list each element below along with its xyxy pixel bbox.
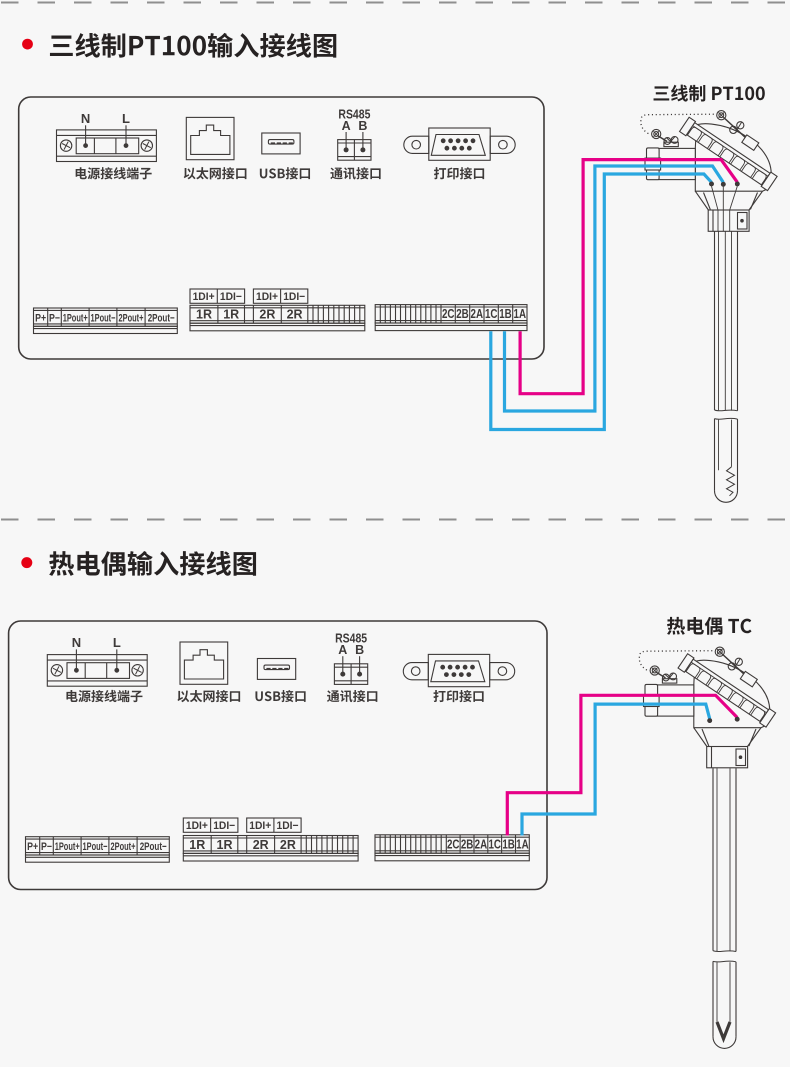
svg-text:L: L (122, 111, 130, 126)
svg-text:1A: 1A (514, 307, 527, 321)
svg-text:1DI+: 1DI+ (256, 291, 278, 303)
svg-text:2R: 2R (259, 308, 275, 322)
svg-text:A: A (342, 119, 351, 133)
svg-text:2A: 2A (475, 837, 488, 851)
svg-text:1Pout+: 1Pout+ (55, 841, 80, 853)
svg-text:1Pout−: 1Pout− (83, 841, 108, 853)
svg-text:2C: 2C (442, 307, 455, 321)
svg-text:P−: P− (41, 841, 52, 853)
svg-text:1R: 1R (196, 308, 212, 322)
svg-text:1Pout+: 1Pout+ (63, 312, 88, 324)
svg-text:1Pout−: 1Pout− (91, 312, 116, 324)
svg-text:2A: 2A (471, 307, 484, 321)
svg-text:1C: 1C (485, 307, 498, 321)
svg-text:1B: 1B (499, 307, 512, 321)
svg-text:N: N (72, 635, 81, 650)
svg-text:2Pout−: 2Pout− (148, 312, 175, 324)
svg-text:1R: 1R (223, 308, 239, 322)
svg-text:P+: P+ (27, 841, 38, 853)
svg-text:1DI−: 1DI− (220, 291, 242, 303)
svg-text:1DI+: 1DI+ (186, 820, 208, 832)
svg-text:1R: 1R (189, 838, 205, 852)
svg-text:B: B (358, 119, 367, 133)
svg-text:1DI+: 1DI+ (249, 820, 271, 832)
svg-text:2C: 2C (447, 837, 460, 851)
svg-text:1R: 1R (217, 838, 233, 852)
svg-text:2R: 2R (287, 308, 303, 322)
svg-text:A: A (338, 643, 347, 657)
svg-text:2R: 2R (253, 838, 269, 852)
svg-text:1DI−: 1DI− (277, 820, 299, 832)
svg-text:2R: 2R (280, 838, 296, 852)
svg-text:1A: 1A (516, 837, 529, 851)
svg-text:1C: 1C (488, 837, 501, 851)
svg-text:2B: 2B (456, 307, 469, 321)
svg-text:1DI−: 1DI− (283, 291, 305, 303)
svg-text:2Pout+: 2Pout+ (111, 841, 136, 853)
svg-text:1DI−: 1DI− (213, 820, 235, 832)
svg-text:1B: 1B (502, 837, 515, 851)
svg-text:N: N (81, 111, 90, 126)
svg-text:2Pout+: 2Pout+ (119, 312, 144, 324)
svg-text:1DI+: 1DI+ (193, 291, 215, 303)
svg-text:2B: 2B (461, 837, 474, 851)
svg-text:P−: P− (49, 312, 60, 324)
svg-text:B: B (355, 643, 364, 657)
svg-text:L: L (113, 635, 121, 650)
svg-text:2Pout−: 2Pout− (140, 841, 167, 853)
svg-text:P+: P+ (35, 312, 46, 324)
